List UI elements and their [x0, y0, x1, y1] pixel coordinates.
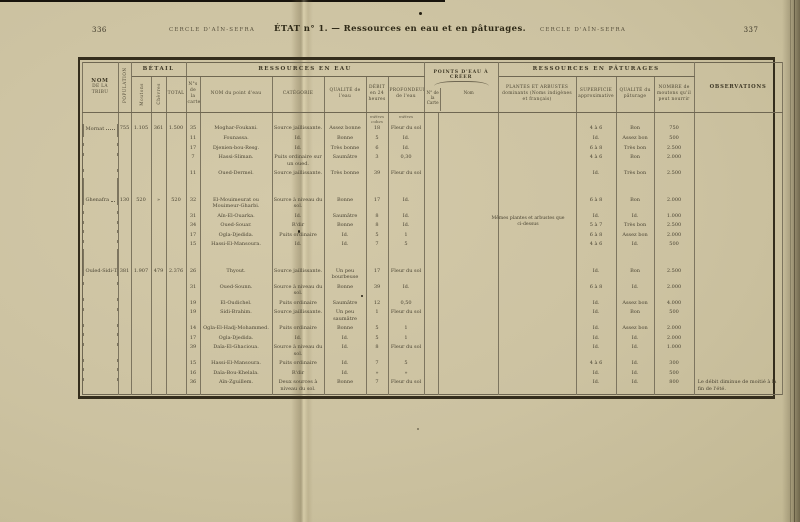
cell-total	[166, 324, 186, 334]
cell-plantes	[498, 143, 576, 153]
cell-tribu	[83, 153, 118, 156]
cell-categorie: Source jaillissante.	[272, 169, 324, 179]
cell-pec-nom	[438, 333, 498, 343]
cell-observation	[694, 324, 782, 334]
cell-population	[118, 333, 131, 343]
cell-tribu	[83, 240, 118, 243]
cell-qualite-eau: Id.	[324, 368, 366, 378]
table-row	[82, 249, 782, 266]
cell-population	[118, 249, 131, 266]
cell-chevres	[151, 143, 166, 153]
cell-chevres	[151, 178, 166, 195]
cell-observation	[694, 124, 782, 134]
cell-pec-nom	[438, 195, 498, 211]
cell-total	[166, 368, 186, 378]
cell-pec-nom	[438, 378, 498, 395]
cell-moutons: 1.907	[131, 266, 151, 282]
cell-superficie: Id.	[576, 378, 616, 395]
cell-debit: 39	[366, 282, 388, 298]
cell-no-carte: 31	[186, 282, 200, 298]
cell-qualite-paturage: Id.	[616, 368, 654, 378]
cell-categorie: Source à niveau du sol.	[272, 195, 324, 211]
cell-moutons	[131, 221, 151, 231]
cell-tribu	[83, 282, 118, 285]
cell-debit: 8	[366, 221, 388, 231]
cell-nom-point-eau: Aïn-El-Ouarka.	[200, 211, 272, 221]
cell-total	[166, 249, 186, 266]
cell-nom-point-eau: El-Mouimeurat ou Mouimeur-Gharbi.	[200, 195, 272, 211]
cell-pec-no	[424, 230, 438, 240]
cell-qualite-paturage: Bon	[616, 308, 654, 324]
header-nom-tribu: NOM DE LA TRIBU	[82, 62, 118, 112]
cell-categorie: R'dir	[272, 368, 324, 378]
cell-nom-point-eau: Ogla-Djedida.	[200, 333, 272, 343]
cell-total: 1.500	[166, 124, 186, 134]
cell-categorie: Id.	[272, 333, 324, 343]
cell-nom-point-eau: Founassa.	[200, 134, 272, 144]
cell-population	[118, 343, 131, 359]
cell-qualite-eau: Bonne	[324, 324, 366, 334]
cell-tribu: Ouled-Sidi-Tadj	[83, 266, 118, 276]
cell-moutons	[131, 298, 151, 308]
cell-population	[118, 221, 131, 231]
cell-tribu	[83, 169, 118, 172]
cell-observation	[694, 359, 782, 369]
table-row: Ghenafra 130 520 » 520 32 El-Mouimeurat …	[82, 195, 782, 211]
header-debit: DÉBIT en 24 heures	[366, 76, 388, 112]
cell-chevres	[151, 230, 166, 240]
cell-qualite-paturage: Très bon	[616, 169, 654, 179]
dotted-leader	[111, 197, 114, 202]
cell-chevres	[151, 134, 166, 144]
cell-pec-no	[424, 249, 438, 266]
cell-observation	[694, 169, 782, 179]
cell-tribu	[83, 308, 118, 311]
cell-profondeur: 1	[388, 333, 424, 343]
cell-categorie	[272, 178, 324, 195]
cell-tribu	[83, 230, 118, 233]
cell-moutons	[131, 240, 151, 250]
cell-superficie: 4 à 6	[576, 359, 616, 369]
cell-tribu	[83, 178, 118, 195]
table-row: 39 Daïa-El-Ghacioua. Source à niveau du …	[82, 343, 782, 359]
cell-chevres: 361	[151, 124, 166, 134]
cell-population: 130	[118, 195, 131, 211]
plantes-note: Mêmes plantes et arbustes que ci-dessus	[488, 216, 568, 229]
table-row: Ouled-Sidi-Tadj 381 1.907 479 2.376 26 T…	[82, 266, 782, 282]
cell-no-carte: 17	[186, 333, 200, 343]
cell-pec-no	[424, 124, 438, 134]
cell-pec-no	[424, 308, 438, 324]
cell-debit: 39	[366, 169, 388, 179]
cell-nombre: 2.500	[654, 221, 694, 231]
cell-chevres: 479	[151, 266, 166, 282]
cell-plantes	[498, 282, 576, 298]
cell-nombre	[654, 178, 694, 195]
header-chevres: Chèvres	[151, 76, 166, 112]
cell-tribu	[83, 143, 118, 146]
cell-superficie: Id.	[576, 169, 616, 179]
cell-no-carte: 19	[186, 298, 200, 308]
cell-plantes	[498, 169, 576, 179]
cell-no-carte	[186, 178, 200, 195]
cell-pec-no	[424, 343, 438, 359]
cell-chevres	[151, 221, 166, 231]
cell-profondeur: Id.	[388, 282, 424, 298]
cell-categorie: Id.	[272, 211, 324, 221]
cell-nombre: 2.000	[654, 324, 694, 334]
cell-pec-nom	[438, 282, 498, 298]
table-row	[82, 178, 782, 195]
cell-categorie: Source à niveau du sol.	[272, 282, 324, 298]
cell-population	[118, 359, 131, 369]
cell-chevres	[151, 249, 166, 266]
cell-no-carte: 11	[186, 169, 200, 179]
cell-pec-no	[424, 211, 438, 221]
cell-categorie: Source jaillissante.	[272, 266, 324, 282]
cell-plantes	[498, 343, 576, 359]
cell-qualite-paturage	[616, 249, 654, 266]
cell-qualite-paturage: Id.	[616, 378, 654, 395]
header-nombre: NOMBRE de moutons qu'il peut nourrir	[654, 76, 694, 112]
cell-profondeur: Id.	[388, 134, 424, 144]
cell-profondeur: Id.	[388, 221, 424, 231]
cell-chevres	[151, 153, 166, 169]
cell-nombre: 750	[654, 124, 694, 134]
cell-superficie: Id.	[576, 266, 616, 282]
cell-moutons	[131, 230, 151, 240]
cell-nom-point-eau: Daïa-Bou-Khelala.	[200, 368, 272, 378]
cell-no-carte: 16	[186, 368, 200, 378]
cell-qualite-paturage: Très bon	[616, 143, 654, 153]
cell-observation	[694, 343, 782, 359]
cell-population	[118, 143, 131, 153]
cell-nom-point-eau: Thyout.	[200, 266, 272, 282]
cell-qualite-paturage: Bon	[616, 266, 654, 282]
cell-observation	[694, 240, 782, 250]
cell-no-carte: 32	[186, 195, 200, 211]
cell-pec-no	[424, 134, 438, 144]
header-pec-no-carte: N° de la Carte	[426, 88, 440, 111]
cell-qualite-paturage: Bon	[616, 153, 654, 169]
cell-moutons	[131, 178, 151, 195]
cell-tribu	[83, 134, 118, 137]
cell-profondeur: Fleur du sol	[388, 343, 424, 359]
cell-profondeur: 0,50	[388, 298, 424, 308]
cell-observation	[694, 195, 782, 211]
ink-speck	[417, 428, 419, 430]
page-edge-shadow	[782, 0, 800, 522]
cell-profondeur: Fleur du sol	[388, 124, 424, 134]
cell-nombre: 2.500	[654, 143, 694, 153]
cell-nombre: 4.000	[654, 298, 694, 308]
cell-tribu	[83, 333, 118, 336]
cell-chevres: »	[151, 195, 166, 211]
cell-total	[166, 378, 186, 395]
cell-total	[166, 282, 186, 298]
header-group-paturages: RESSOURCES EN PÂTURAGES	[498, 62, 694, 76]
cell-profondeur: Id.	[388, 143, 424, 153]
cell-observation	[694, 333, 782, 343]
cell-plantes	[498, 324, 576, 334]
cell-pec-no	[424, 298, 438, 308]
cell-total	[166, 240, 186, 250]
cell-qualite-eau: Bonne	[324, 282, 366, 298]
cell-chevres	[151, 211, 166, 221]
cell-total	[166, 333, 186, 343]
cell-profondeur: 5	[388, 359, 424, 369]
cell-profondeur: Fleur du sol	[388, 169, 424, 179]
cell-debit: 7	[366, 359, 388, 369]
cell-population	[118, 211, 131, 221]
cell-nombre: 300	[654, 359, 694, 369]
cell-tribu	[83, 221, 118, 224]
cell-superficie: Id.	[576, 333, 616, 343]
cell-qualite-eau: Un peu bourbeuse	[324, 266, 366, 282]
header-moutons: Moutons	[131, 76, 151, 112]
cell-plantes	[498, 378, 576, 395]
cell-qualite-paturage: Id.	[616, 359, 654, 369]
header-nom-point-eau: NOM du point d'eau	[200, 76, 272, 112]
cell-moutons	[131, 153, 151, 169]
header-qualite-eau: QUALITÉ de l'eau	[324, 76, 366, 112]
cell-qualite-paturage: Bon	[616, 195, 654, 211]
cell-nombre	[654, 249, 694, 266]
cell-qualite-paturage: Très bon	[616, 221, 654, 231]
cell-pec-nom	[438, 266, 498, 282]
cell-pec-no	[424, 240, 438, 250]
table-row: 14 Ogla-El-Hadj-Mohammed. Puits ordinair…	[82, 324, 782, 334]
cell-no-carte: 15	[186, 359, 200, 369]
cell-pec-no	[424, 333, 438, 343]
cell-categorie: Puits ordinaire sur un oued.	[272, 153, 324, 169]
cell-nom-point-eau: Oued-Dermel.	[200, 169, 272, 179]
cell-superficie: 6 à 8	[576, 230, 616, 240]
cell-population: 755	[118, 124, 131, 134]
cell-nom-point-eau: Djenien-bou-Resg.	[200, 143, 272, 153]
cell-tribu	[83, 359, 118, 362]
cell-plantes	[498, 153, 576, 169]
cell-nom-point-eau: Ogla-El-Hadj-Mohammed.	[200, 324, 272, 334]
table-row: 7 Hassi-Sliman. Puits ordinaire sur un o…	[82, 153, 782, 169]
cell-population	[118, 230, 131, 240]
cell-categorie: Id.	[272, 143, 324, 153]
cell-observation	[694, 249, 782, 266]
table-row: Mornat 755 1.105 361 1.500 35 Moghar-Fou…	[82, 124, 782, 134]
cell-plantes	[498, 134, 576, 144]
cell-qualite-eau: Bonne	[324, 221, 366, 231]
cell-plantes	[498, 124, 576, 134]
cell-profondeur: 0,30	[388, 153, 424, 169]
cell-moutons	[131, 211, 151, 221]
cell-debit: 6	[366, 143, 388, 153]
cell-moutons	[131, 359, 151, 369]
cell-debit: 17	[366, 195, 388, 211]
cell-debit: 5	[366, 230, 388, 240]
cell-nombre: 1.000	[654, 343, 694, 359]
cell-pec-no	[424, 169, 438, 179]
cell-categorie: Puits ordinaire	[272, 324, 324, 334]
cell-total	[166, 343, 186, 359]
cell-pec-nom	[438, 249, 498, 266]
cell-nombre: 500	[654, 368, 694, 378]
cell-debit: »	[366, 368, 388, 378]
cell-pec-no	[424, 143, 438, 153]
cell-nom-point-eau: Daïa-El-Ghacioua.	[200, 343, 272, 359]
cell-tribu	[83, 343, 118, 346]
cell-observation	[694, 221, 782, 231]
cell-superficie: 4 à 6	[576, 153, 616, 169]
cell-no-carte: 34	[186, 221, 200, 231]
cell-nom-point-eau: Ogla-Djedida.	[200, 230, 272, 240]
cell-moutons	[131, 169, 151, 179]
page-title: ÉTAT n° 1. — Ressources en eau et en pât…	[274, 24, 526, 34]
header-group-points-eau-a-creer: POINTS D'EAU À CRÉER N° de la Carte Nom	[424, 62, 498, 112]
cell-superficie: Id.	[576, 324, 616, 334]
cell-total: 2.376	[166, 266, 186, 282]
cell-superficie	[576, 249, 616, 266]
cell-profondeur: 5	[388, 240, 424, 250]
cell-plantes	[498, 230, 576, 240]
running-head-right: CERCLE D'AÏN-SEFRA	[540, 27, 626, 33]
cell-total	[166, 143, 186, 153]
header-categorie: CATÉGORIE	[272, 76, 324, 112]
cell-pec-no	[424, 153, 438, 169]
cell-profondeur: 1	[388, 230, 424, 240]
cell-qualite-eau: Très bonne	[324, 169, 366, 179]
cell-profondeur: 1	[388, 324, 424, 334]
cell-categorie: Id.	[272, 134, 324, 144]
header-group-betail: BÉTAIL	[131, 62, 186, 76]
page-number-right: 337	[744, 26, 759, 34]
cell-nom-point-eau	[200, 178, 272, 195]
cell-pec-nom	[438, 143, 498, 153]
cell-profondeur: Id.	[388, 211, 424, 221]
cell-pec-no	[424, 378, 438, 395]
cell-population	[118, 282, 131, 298]
cell-categorie	[272, 249, 324, 266]
cell-debit: 5	[366, 134, 388, 144]
cell-no-carte: 17	[186, 143, 200, 153]
cell-observation	[694, 143, 782, 153]
cell-debit: 17	[366, 266, 388, 282]
table-row: 16 Daïa-Bou-Khelala. R'dir Id. » » Id. I…	[82, 368, 782, 378]
cell-plantes	[498, 240, 576, 250]
cell-moutons	[131, 368, 151, 378]
ink-speck	[419, 12, 422, 15]
scanned-book-spread: { "page": { "left_number": "336", "left_…	[0, 0, 800, 522]
cell-total	[166, 298, 186, 308]
cell-superficie: 6 à 8	[576, 143, 616, 153]
cell-no-carte: 19	[186, 308, 200, 324]
cell-superficie: 6 à 8	[576, 282, 616, 298]
cell-categorie: Puits ordinaire	[272, 359, 324, 369]
table-row: 17 Ogla-Djedida. Puits ordinaire Id. 5 1…	[82, 230, 782, 240]
page-edge-line	[794, 0, 795, 522]
cell-nom-point-eau: Hassi-El-Mansoura.	[200, 359, 272, 369]
table-row: 19 El-Oudichel. Puits ordinaire Saumâtre…	[82, 298, 782, 308]
resources-table: NOM DE LA TRIBU POPULATION BÉTAIL RESSOU…	[78, 57, 775, 399]
cell-qualite-paturage	[616, 178, 654, 195]
cell-nombre: 2.500	[654, 266, 694, 282]
cell-pec-nom	[438, 240, 498, 250]
cell-nombre: 500	[654, 308, 694, 324]
cell-debit	[366, 178, 388, 195]
cell-qualite-paturage: Id.	[616, 343, 654, 359]
table-row: 15 Hassi-El-Mansoura. Id. Id. 7 5 4 à 6 …	[82, 240, 782, 250]
cell-superficie: Id.	[576, 298, 616, 308]
cell-debit: 8	[366, 211, 388, 221]
cell-pec-nom	[438, 298, 498, 308]
header-profondeur: PROFONDEUR de l'eau	[388, 76, 424, 112]
cell-moutons	[131, 324, 151, 334]
cell-debit: 3	[366, 153, 388, 169]
cell-categorie: Id.	[272, 240, 324, 250]
cell-moutons	[131, 282, 151, 298]
header-pec-nom: Nom	[440, 88, 497, 111]
cell-no-carte: 7	[186, 153, 200, 169]
cell-total: 520	[166, 195, 186, 211]
cell-observation	[694, 211, 782, 221]
cell-nombre: 2.000	[654, 333, 694, 343]
cell-tribu	[83, 298, 118, 301]
header-no-carte: N°s de la carte	[186, 76, 200, 112]
cell-nom-point-eau: Moghar-Foukani.	[200, 124, 272, 134]
cell-debit: 7	[366, 378, 388, 395]
table-row: 31 Aïn-El-Ouarka. Id. Saumâtre 8 Id. Id.…	[82, 211, 782, 221]
cell-population: 381	[118, 266, 131, 282]
cell-superficie: 4 à 6	[576, 124, 616, 134]
cell-chevres	[151, 343, 166, 359]
table-row: 31 Oued-Sounn. Source à niveau du sol. B…	[82, 282, 782, 298]
cell-nombre: 2.000	[654, 282, 694, 298]
cell-chevres	[151, 324, 166, 334]
cell-categorie: Deux sources à niveau du sol.	[272, 378, 324, 395]
cell-total	[166, 230, 186, 240]
cell-chevres	[151, 282, 166, 298]
cell-tribu	[83, 368, 118, 371]
cell-nombre: 500	[654, 134, 694, 144]
cell-population	[118, 378, 131, 395]
cell-plantes	[498, 368, 576, 378]
cell-population	[118, 134, 131, 144]
cell-categorie: Puits ordinaire	[272, 230, 324, 240]
cell-qualite-paturage: Assez bon	[616, 230, 654, 240]
dotted-leader	[106, 125, 114, 130]
cell-qualite-eau: Id.	[324, 230, 366, 240]
table-row: 19 Sidi-Brahim. Source jaillissante. Un …	[82, 308, 782, 324]
cell-pec-nom	[438, 343, 498, 359]
cell-chevres	[151, 240, 166, 250]
cell-nom-point-eau: Aïn-Zguillem.	[200, 378, 272, 395]
cell-population	[118, 324, 131, 334]
cell-tribu	[83, 324, 118, 327]
cell-tribu	[83, 211, 118, 214]
cell-qualite-eau: Id.	[324, 240, 366, 250]
cell-tribu	[83, 249, 118, 266]
header-superficie: SUPERFICIE approximative	[576, 76, 616, 112]
cell-chevres	[151, 333, 166, 343]
cell-pec-no	[424, 282, 438, 298]
cell-debit: 5	[366, 333, 388, 343]
cell-moutons	[131, 143, 151, 153]
cell-categorie: Source à niveau du sol.	[272, 343, 324, 359]
cell-plantes	[498, 195, 576, 211]
cell-categorie: R'dir	[272, 221, 324, 231]
cell-nombre: 2.000	[654, 230, 694, 240]
header-population: POPULATION	[118, 62, 131, 112]
cell-total	[166, 178, 186, 195]
